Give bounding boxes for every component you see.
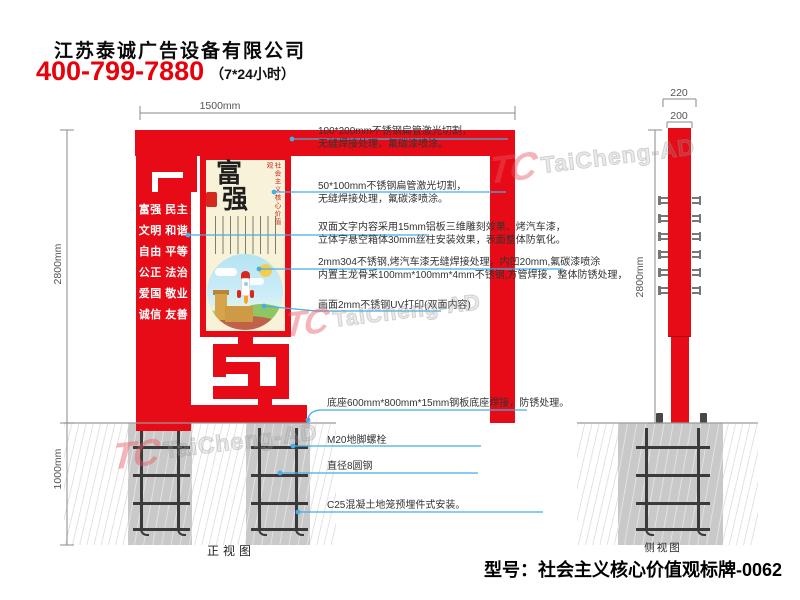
side-pole-box [668, 128, 691, 337]
cage-rung [133, 474, 190, 477]
rocket-fin [250, 290, 254, 298]
annotation-concrete-cage: C25混凝土地笼预埋件式安装。 [327, 500, 465, 513]
value-item: 自由 平等 [136, 242, 191, 263]
cage-bar [258, 428, 261, 528]
dim-width-label: 1500mm [190, 100, 250, 112]
poster-illustration [207, 254, 283, 330]
watermark: TC TaiCheng-AD [486, 127, 697, 190]
fret-pattern-bar [152, 156, 197, 172]
cage-rung [251, 446, 308, 449]
base-bar [187, 405, 307, 423]
spiral-fret-bar [248, 362, 260, 386]
cloud-icon [215, 268, 237, 276]
annotation-line: C25混凝土地笼预埋件式安装。 [327, 500, 465, 513]
anchor-bolt [700, 413, 707, 423]
cage-bar [140, 428, 143, 528]
value-item: 富强 民主 [136, 200, 191, 221]
poster-title-char: 强 [222, 187, 248, 213]
annotation-3d-lettering: 双面文字内容采用15mm铝板三维雕刻效果、烤汽车漆， 立体字悬空箱体30mm丝柱… [318, 222, 566, 248]
spiral-fret-bar [213, 386, 289, 399]
mounting-stud [691, 196, 701, 205]
mounting-stud [691, 250, 701, 259]
cage-rung [636, 474, 710, 477]
value-item: 文明 和谐 [136, 221, 191, 242]
value-item: 爱国 敬业 [136, 284, 191, 305]
value-item: 诚信 友善 [136, 305, 191, 326]
model-number-label: 型号：社会主义核心价值观标牌-0062 [484, 556, 782, 582]
cage-bar [295, 428, 298, 528]
hotline-number: 400-799-7880 [36, 56, 204, 87]
cage-bar [645, 428, 648, 528]
mounting-stud [658, 286, 668, 295]
mounting-stud [658, 214, 668, 223]
annotation-outer-frame-tube: 100*200mm不锈钢扁管激光切割， 无缝焊接处理，氟碳漆喷涂。 [318, 126, 472, 152]
annotation-line: 立体字悬空箱体30mm丝柱安装效果，表面整体防氧化。 [318, 235, 566, 248]
cage-rung [636, 502, 710, 505]
spiral-fret-bar [213, 344, 226, 377]
mounting-stud [658, 232, 668, 241]
wall-body [225, 306, 253, 322]
mounting-stud [691, 232, 701, 241]
annotation-uv-print: 画面2mm不锈钢UV打印(双面内容) [318, 300, 471, 313]
rocket-flame [244, 296, 248, 304]
cage-rung [133, 446, 190, 449]
front-view-caption: 正视图 [196, 542, 266, 559]
annotation-line: 内置主龙骨采100mm*100mm*4mm不锈钢,方管焊接，整体防锈处理， [318, 270, 627, 283]
annotation-line: 50*100mm不锈钢扁管激光切割， [318, 181, 466, 194]
mounting-stud [691, 286, 701, 295]
annotation-line: 底座600mm*800mm*15mm钢板底座焊接，防锈处理。 [327, 398, 569, 411]
hotline: 400-799-7880 （7*24小时） [36, 56, 295, 87]
annotation-line: 直径8圆钢 [327, 461, 373, 474]
cage-bar [177, 428, 180, 528]
annotation-line: M20地脚螺栓 [327, 435, 386, 448]
cage-bar [697, 428, 700, 528]
dim-outer-label: 220 [664, 87, 694, 99]
mounting-stud [658, 250, 668, 259]
mounting-stud [658, 196, 668, 205]
rocket-window [244, 282, 248, 286]
signage-design-sheet: 江苏泰诚广告设备有限公司 400-799-7880 （7*24小时） [0, 0, 800, 600]
side-pole-post [671, 337, 689, 423]
annotation-anchor-bolt: M20地脚螺栓 [327, 435, 386, 448]
seal-stamp-icon [206, 192, 217, 207]
annotation-round-steel: 直径8圆钢 [327, 461, 373, 474]
watermark: TC TaiCheng-AD [283, 284, 483, 343]
annotation-base-plate: 底座600mm*800mm*15mm钢板底座焊接，防锈处理。 [327, 398, 569, 411]
dim-height-label-side: 2800mm [634, 251, 646, 303]
poster-fine-print [212, 216, 276, 254]
mounting-stud [691, 268, 701, 277]
annotation-box-body: 2mm304不锈钢,烤汽车漆无缝焊接处理，内凹20mm,氟碳漆喷涂 内置主龙骨采… [318, 257, 627, 283]
poster-title-char: 富 [216, 161, 242, 187]
moon-icon [259, 264, 272, 277]
cage-rung [251, 502, 308, 505]
mounting-stud [691, 214, 701, 223]
dim-inner-label: 200 [666, 110, 692, 122]
annotation-line: 双面文字内容采用15mm铝板三维雕刻效果、烤汽车漆， [318, 222, 566, 235]
concrete-footing [618, 423, 723, 545]
dim-height-label: 2800mm [52, 238, 64, 290]
annotation-line: 画面2mm不锈钢UV打印(双面内容) [318, 300, 471, 313]
annotation-line: 无缝焊接处理，氟碳漆喷涂。 [318, 139, 472, 152]
poster-panel: 社会主义核心价值观 富 强 [200, 148, 291, 337]
rocket-fin [237, 290, 241, 298]
annotation-panel-frame-tube: 50*100mm不锈钢扁管激光切割， 无缝焊接处理，氟碳漆喷涂。 [318, 181, 466, 207]
rocket-body [241, 278, 250, 296]
annotation-line: 无缝焊接处理，氟碳漆喷涂。 [318, 194, 466, 207]
mounting-stud [658, 268, 668, 277]
side-view-caption: 侧视图 [635, 540, 691, 555]
annotation-line: 100*200mm不锈钢扁管激光切割， [318, 126, 472, 139]
values-column: 富强 民主 文明 和谐 自由 平等 公正 法治 爱国 敬业 诚信 友善 [136, 192, 191, 431]
spiral-fret-bar [226, 362, 248, 374]
annotation-line: 2mm304不锈钢,烤汽车漆无缝焊接处理，内凹20mm,氟碳漆喷涂 [318, 257, 627, 270]
fret-pattern-bar [158, 178, 197, 192]
cage-rung [133, 502, 190, 505]
hotline-hours: （7*24小时） [210, 64, 295, 87]
cage-rung [636, 446, 710, 449]
dim-depth-label: 1000mm [52, 443, 64, 495]
value-item: 公正 法治 [136, 263, 191, 284]
cage-rung [251, 474, 308, 477]
anchor-bolt [656, 413, 663, 423]
